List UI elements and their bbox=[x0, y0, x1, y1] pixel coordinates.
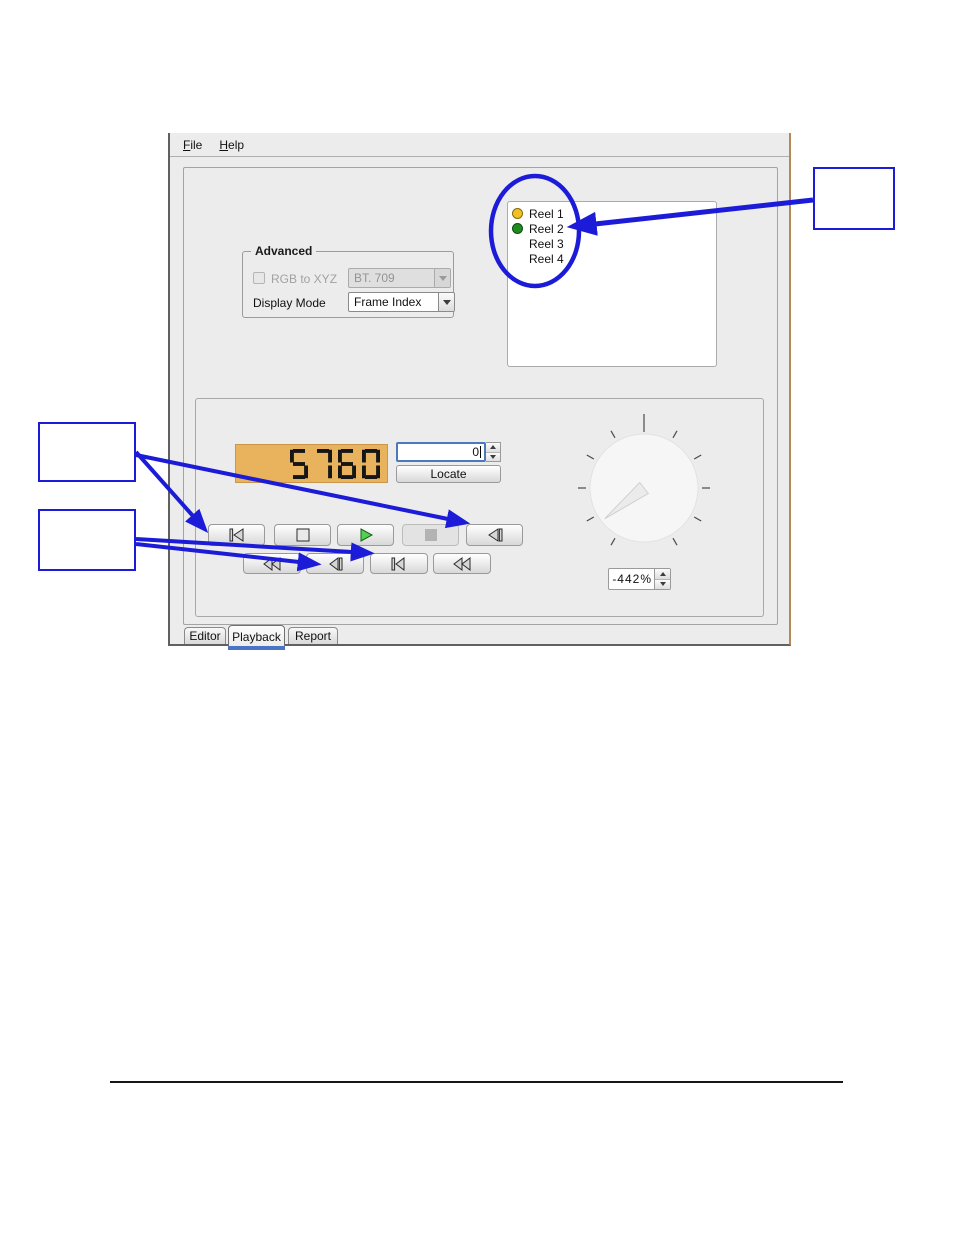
spin-up-button[interactable] bbox=[655, 569, 670, 579]
stop-button[interactable] bbox=[274, 524, 331, 546]
step-back-button[interactable] bbox=[306, 553, 364, 574]
step-forward-icon bbox=[389, 557, 409, 571]
locate-button[interactable]: Locate bbox=[396, 465, 501, 483]
step-back-icon bbox=[325, 557, 345, 571]
menu-file[interactable]: File bbox=[183, 138, 202, 152]
shuttle-dial[interactable] bbox=[569, 413, 719, 563]
menu-help[interactable]: Help bbox=[219, 138, 244, 152]
reel-label: Reel 1 bbox=[529, 207, 564, 221]
display-mode-combo-value: Frame Index bbox=[349, 295, 438, 309]
frame-number-input[interactable]: 0 bbox=[396, 442, 486, 462]
frame-counter-lcd bbox=[235, 444, 388, 483]
reel-list-item[interactable]: Reel 1 bbox=[508, 206, 716, 221]
fast-forward-icon bbox=[451, 557, 473, 571]
frame-number-spinbox[interactable]: 0 bbox=[396, 442, 501, 462]
reel-list-item[interactable]: Reel 2 bbox=[508, 221, 716, 236]
reel-label: Reel 4 bbox=[529, 252, 564, 266]
chevron-down-icon bbox=[434, 269, 450, 287]
spin-down-button[interactable] bbox=[655, 579, 670, 590]
rgb-to-xyz-label: RGB to XYZ bbox=[271, 272, 337, 286]
tab-editor[interactable]: Editor bbox=[184, 627, 226, 644]
callout-box-skip-buttons bbox=[38, 422, 136, 482]
display-mode-combo[interactable]: Frame Index bbox=[348, 292, 455, 312]
display-mode-label: Display Mode bbox=[253, 296, 326, 310]
tab-report[interactable]: Report bbox=[288, 627, 338, 644]
pause-stop-icon bbox=[423, 528, 439, 542]
skip-to-start-icon bbox=[226, 528, 248, 542]
chevron-down-icon[interactable] bbox=[438, 293, 454, 311]
frame-number-value: 0 bbox=[472, 445, 479, 459]
reel-label: Reel 2 bbox=[529, 222, 564, 236]
fast-forward-button[interactable] bbox=[433, 553, 491, 574]
rewind-button[interactable] bbox=[243, 553, 301, 574]
pause-button-disabled bbox=[402, 524, 459, 546]
skip-to-end-button[interactable] bbox=[466, 524, 523, 546]
locate-button-label: Locate bbox=[430, 467, 466, 481]
speed-spinbox[interactable]: -442% bbox=[608, 568, 671, 590]
reel-status-yellow-icon bbox=[512, 208, 523, 219]
reel-label: Reel 3 bbox=[529, 237, 564, 251]
skip-to-end-icon bbox=[484, 528, 506, 542]
step-forward-button[interactable] bbox=[370, 553, 428, 574]
text-caret bbox=[480, 446, 481, 458]
menu-bar: File Help bbox=[170, 133, 789, 157]
speed-value[interactable]: -442% bbox=[608, 568, 655, 590]
rewind-icon bbox=[261, 557, 283, 571]
application-window: File Help Advanced RGB to XYZ BT. 709 Di… bbox=[168, 133, 791, 646]
reel-list-item[interactable]: Reel 4 bbox=[508, 251, 716, 266]
play-button[interactable] bbox=[337, 524, 394, 546]
play-icon bbox=[357, 528, 375, 542]
skip-to-start-button[interactable] bbox=[208, 524, 265, 546]
colorspace-combo: BT. 709 bbox=[348, 268, 451, 288]
advanced-group-title: Advanced bbox=[251, 244, 316, 258]
tab-playback[interactable]: Playback bbox=[228, 625, 285, 647]
stop-icon bbox=[295, 528, 311, 542]
reel-list-item[interactable]: Reel 3 bbox=[508, 236, 716, 251]
reel-list[interactable]: Reel 1 Reel 2 Reel 3 Reel 4 bbox=[507, 201, 717, 367]
footer-rule bbox=[110, 1081, 843, 1083]
lcd-digits bbox=[290, 449, 380, 479]
reel-status-green-icon bbox=[512, 223, 523, 234]
advanced-group: Advanced RGB to XYZ BT. 709 Display Mode… bbox=[242, 251, 454, 318]
playback-group: 0 Locate bbox=[195, 398, 764, 617]
callout-box-step-buttons bbox=[38, 509, 136, 571]
spin-up-button[interactable] bbox=[486, 443, 500, 452]
spin-down-button[interactable] bbox=[486, 452, 500, 462]
rgb-to-xyz-checkbox bbox=[253, 272, 265, 284]
colorspace-combo-value: BT. 709 bbox=[349, 271, 434, 285]
callout-box-reels bbox=[813, 167, 895, 230]
